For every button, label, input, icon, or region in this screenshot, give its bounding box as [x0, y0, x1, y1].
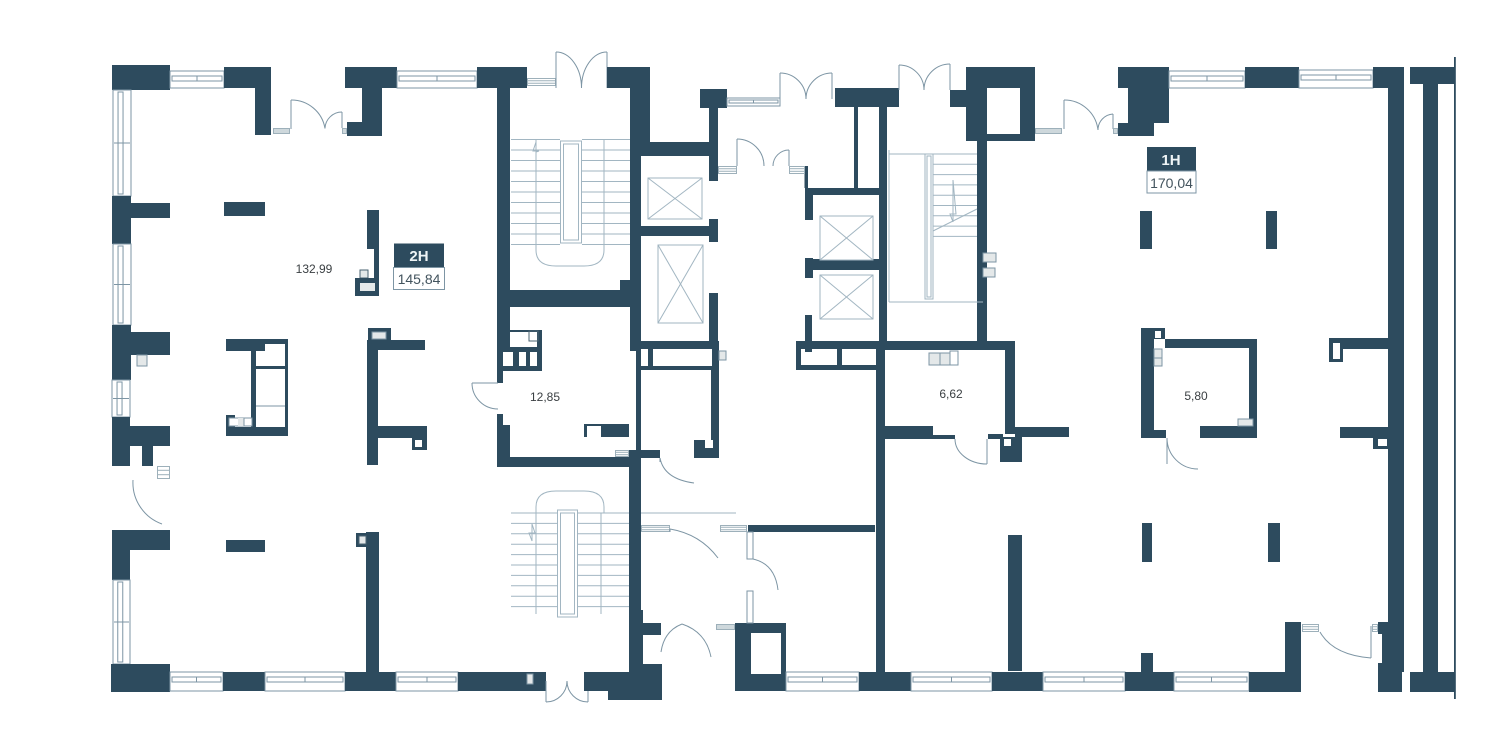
- svg-text:1H: 1H: [1161, 152, 1180, 169]
- svg-text:132,99: 132,99: [296, 262, 333, 276]
- svg-text:145,84: 145,84: [398, 271, 441, 287]
- svg-text:2H: 2H: [409, 248, 428, 265]
- svg-text:5,80: 5,80: [1184, 389, 1208, 403]
- svg-text:170,04: 170,04: [1150, 175, 1193, 191]
- svg-text:12,85: 12,85: [530, 390, 560, 404]
- svg-text:6,62: 6,62: [939, 387, 963, 401]
